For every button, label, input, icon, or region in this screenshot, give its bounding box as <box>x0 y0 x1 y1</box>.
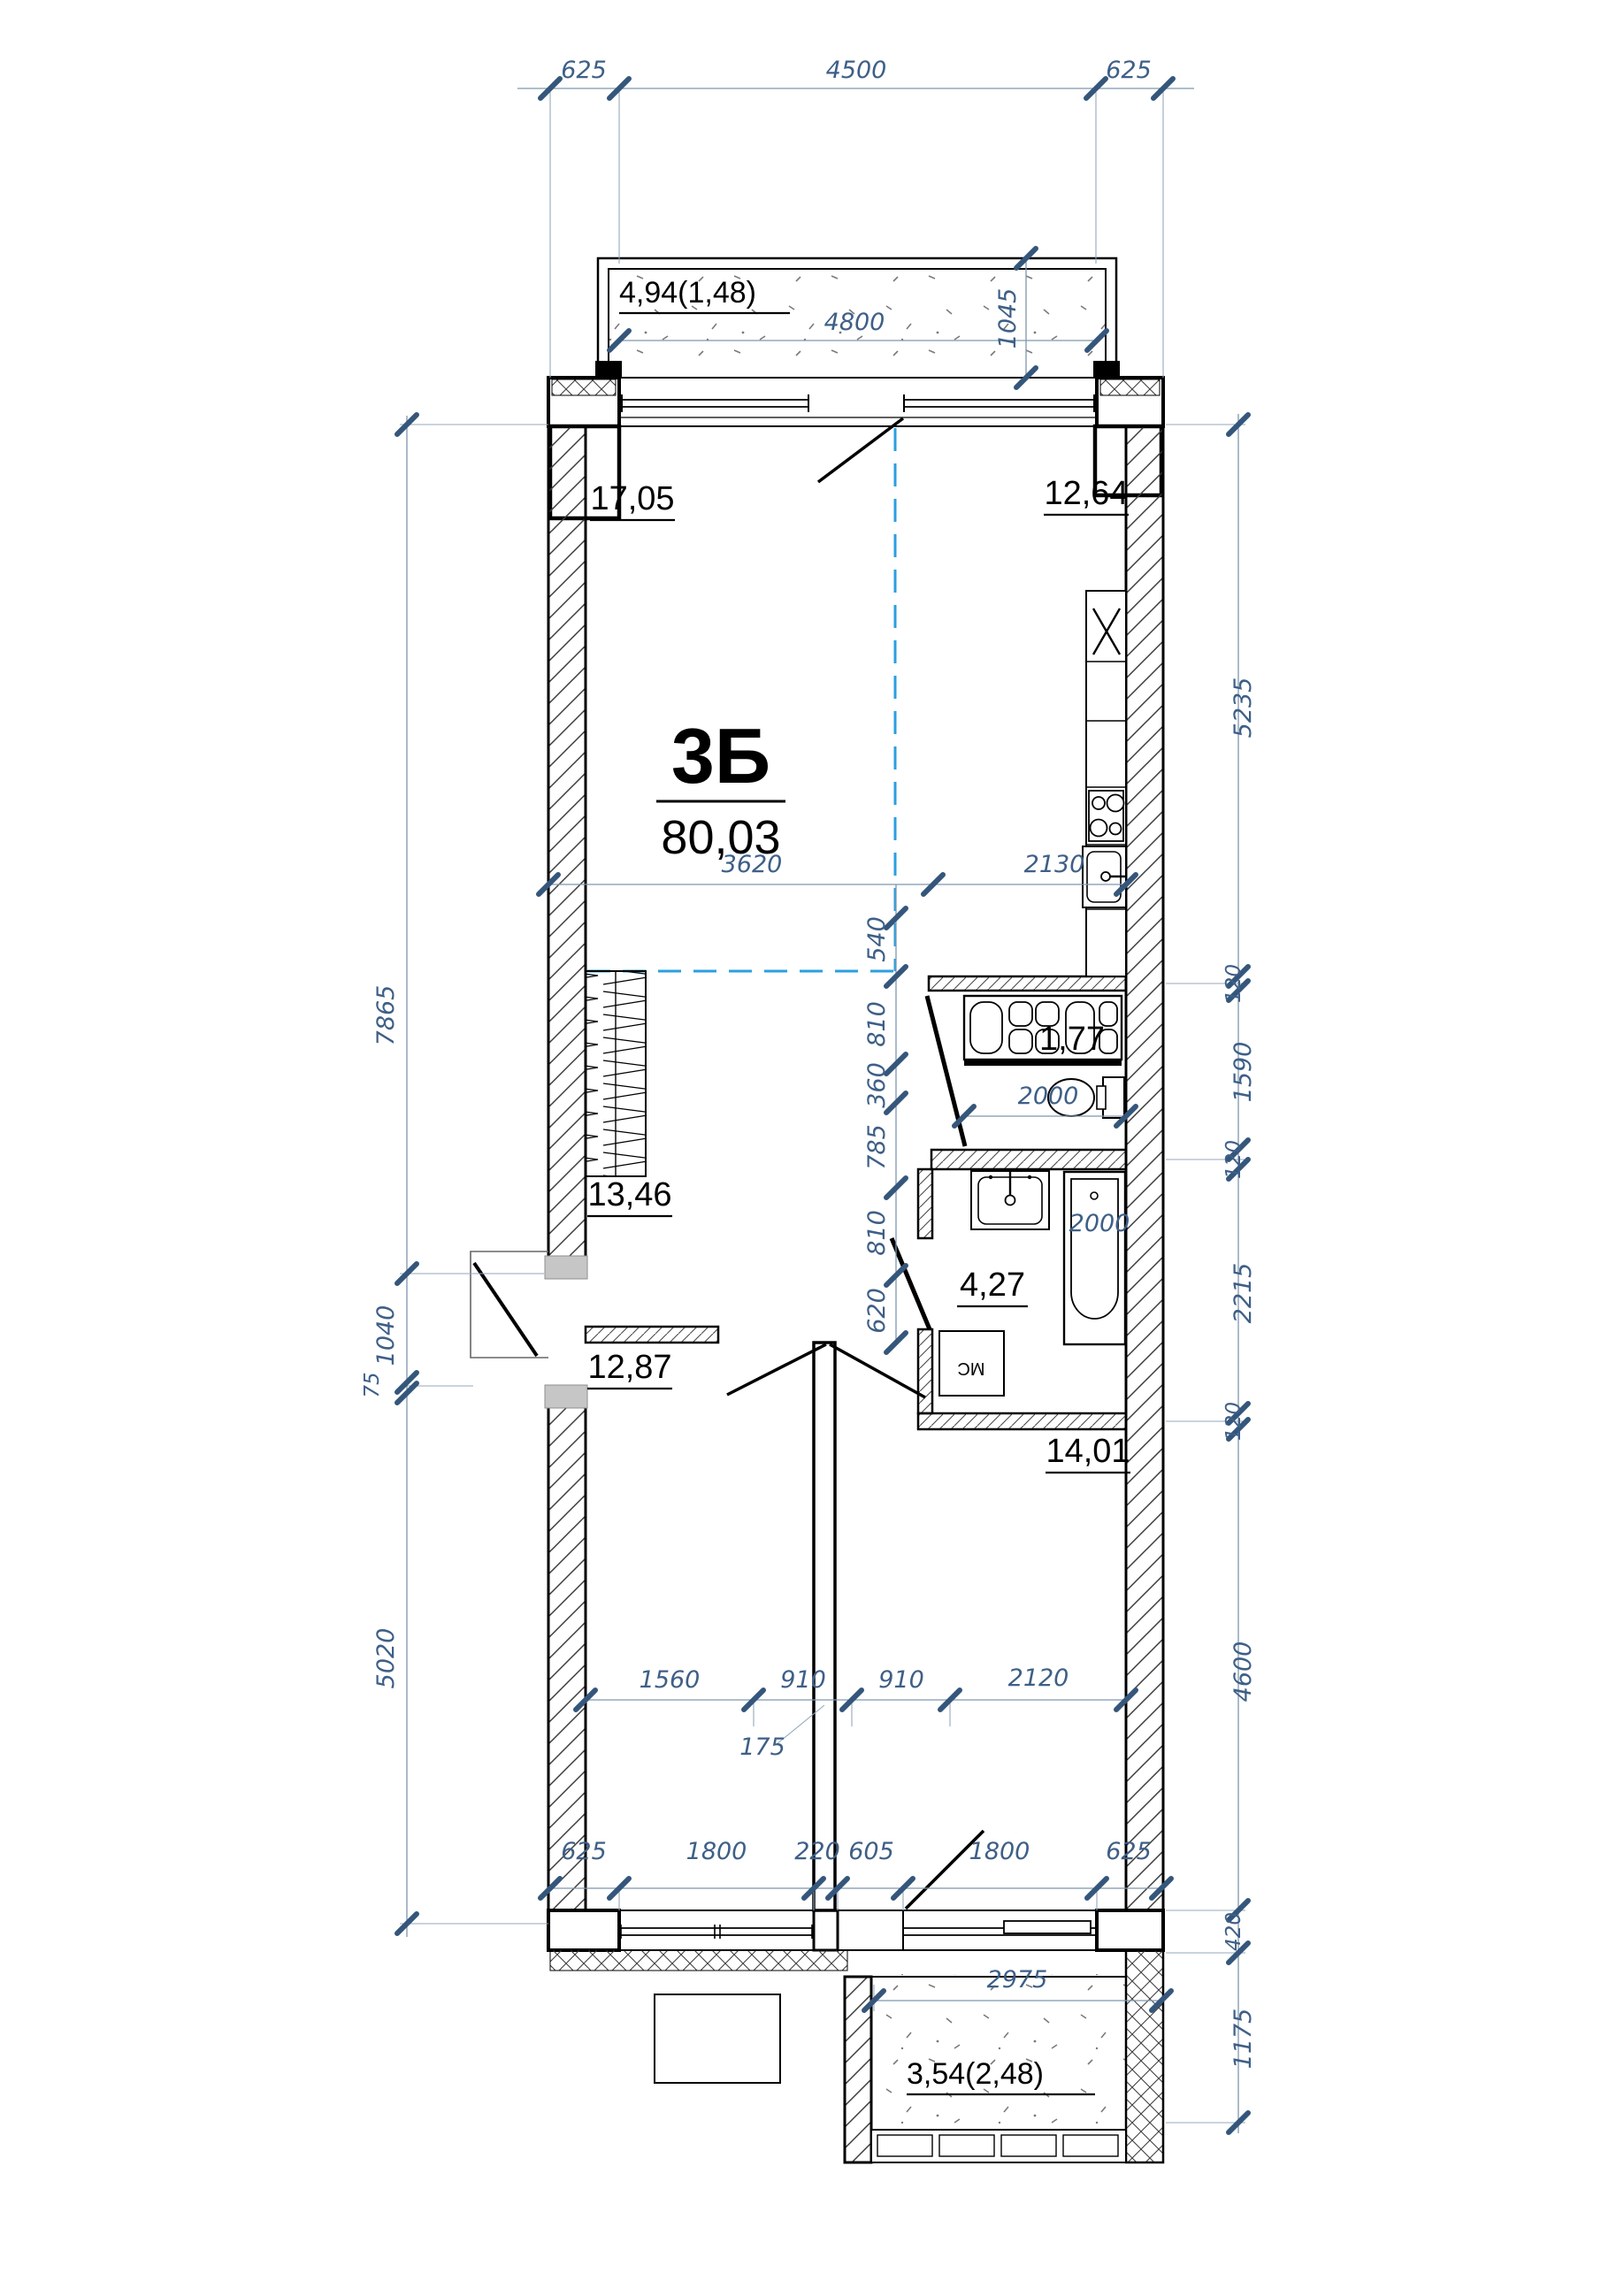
dim-rooms-2120: 2120 <box>1008 1665 1069 1692</box>
dim-bottom-625-right: 625 <box>1106 1838 1152 1865</box>
balcony-bottom-area-label: 3,54(2,48) <box>907 2057 1044 2091</box>
dim-left-75: 75 <box>361 1372 384 1397</box>
unit-total-area: 80,03 <box>661 811 780 864</box>
unit-label: 3Б 80,03 <box>656 712 785 864</box>
dim-right-120b: 120 <box>1222 1140 1245 1179</box>
entry-door-leaf <box>474 1263 537 1356</box>
bathroom-area-label: 4,27 <box>960 1267 1025 1304</box>
dim-left-5020: 5020 <box>372 1628 400 1689</box>
bathtub <box>1064 1172 1125 1344</box>
dim-left-7865: 7865 <box>372 985 400 1046</box>
bedroom2-door-leaf <box>830 1344 925 1397</box>
dim-right-420: 420 <box>1222 1912 1245 1951</box>
wardrobe <box>586 971 646 1176</box>
dim-mid-620: 620 <box>863 1288 891 1334</box>
unit-code: 3Б <box>671 712 770 800</box>
dim-bottom-1800-left: 1800 <box>686 1838 747 1865</box>
washing-machine: МС <box>939 1331 1004 1396</box>
living-area-label: 17,05 <box>590 480 674 517</box>
entry-door <box>471 1251 587 1408</box>
floor-plan-page: МС 625 4500 625 4800 1045 7865 1040 75 5… <box>0 0 1624 2296</box>
dim-mid-785: 785 <box>863 1124 891 1170</box>
stove <box>1089 791 1124 841</box>
bedroom1-area-label: 12,87 <box>587 1349 671 1386</box>
dim-mid-360: 360 <box>863 1062 891 1108</box>
dim-balcony-top-depth: 1045 <box>994 288 1022 349</box>
balcony-top-area-label: 4,94(1,48) <box>619 276 756 310</box>
dim-bottom-625-left: 625 <box>561 1838 607 1865</box>
kitchen-sink <box>1083 846 1127 907</box>
bedroom2-area-label: 14,01 <box>1046 1433 1130 1470</box>
dim-right-120c: 120 <box>1222 1402 1245 1441</box>
dim-balcony-bottom-width: 2975 <box>987 1966 1048 1994</box>
balcony-door-leaf-top <box>818 418 903 482</box>
external-pad <box>655 1994 780 2083</box>
wc-area-label: 1,77 <box>1039 1021 1105 1058</box>
dim-zone-540: 540 <box>863 916 891 962</box>
dim-kitchen-width: 2130 <box>1024 851 1085 878</box>
dim-balcony-top-width: 4800 <box>824 309 885 336</box>
dim-top-625-left: 625 <box>561 57 607 84</box>
dim-rooms-1560: 1560 <box>640 1666 701 1694</box>
dim-bathtub-2000: 2000 <box>1069 1210 1130 1237</box>
dim-mid-810a: 810 <box>863 1001 891 1047</box>
dim-right-1590: 1590 <box>1229 1042 1257 1103</box>
kitchen-area-label: 12,64 <box>1044 475 1128 512</box>
dim-mid-810b: 810 <box>863 1210 891 1256</box>
dim-top-625-right: 625 <box>1106 57 1152 84</box>
dim-bottom-220: 220 <box>794 1838 840 1865</box>
dim-right-120a: 120 <box>1222 964 1245 1003</box>
washing-machine-label: МС <box>957 1358 984 1378</box>
dim-stub-175: 175 <box>739 1733 785 1761</box>
dim-bottom-605: 605 <box>848 1838 894 1865</box>
floor-plan-canvas: МС 625 4500 625 4800 1045 7865 1040 75 5… <box>0 0 1624 2296</box>
dim-bottom-1800-right: 1800 <box>969 1838 1030 1865</box>
dim-top-4500: 4500 <box>826 57 887 84</box>
dim-right-4600: 4600 <box>1229 1642 1257 1703</box>
dim-right-5235: 5235 <box>1229 677 1257 739</box>
hallway-area-label: 13,46 <box>587 1176 671 1213</box>
dim-left-1040: 1040 <box>372 1305 400 1366</box>
dim-right-2215: 2215 <box>1229 1263 1257 1324</box>
dim-right-1175: 1175 <box>1229 2009 1257 2070</box>
bathroom-angled-wall <box>892 1238 930 1329</box>
dim-rooms-910b: 910 <box>878 1666 924 1694</box>
washbasin <box>971 1171 1049 1229</box>
dim-rooms-910a: 910 <box>780 1666 826 1694</box>
dim-wc-2000: 2000 <box>1018 1083 1079 1110</box>
kitchen-counter <box>1083 591 1127 976</box>
bedroom1-door-leaf <box>727 1344 826 1395</box>
